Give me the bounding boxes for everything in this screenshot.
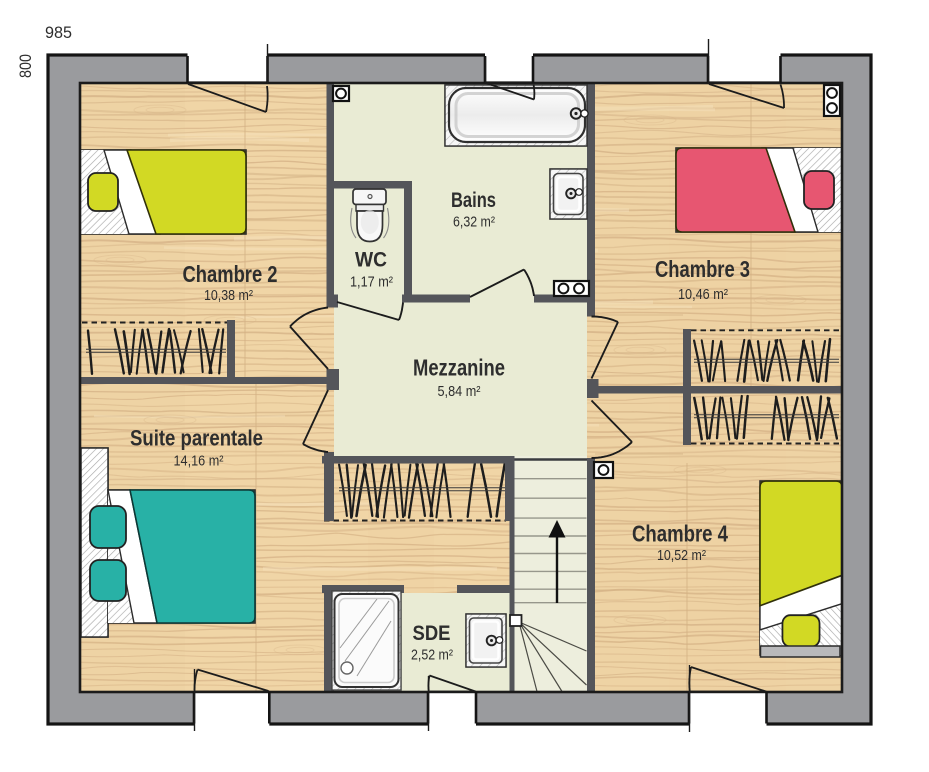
- svg-text:985: 985: [45, 24, 72, 42]
- svg-text:Suite parentale: Suite parentale: [130, 426, 263, 451]
- svg-text:14,16 m²: 14,16 m²: [174, 454, 224, 470]
- svg-text:5,84 m²: 5,84 m²: [438, 384, 481, 400]
- svg-text:2,52 m²: 2,52 m²: [411, 648, 453, 664]
- svg-text:10,52 m²: 10,52 m²: [657, 548, 706, 564]
- svg-text:6,32 m²: 6,32 m²: [453, 215, 495, 231]
- svg-text:Chambre 4: Chambre 4: [632, 521, 728, 547]
- svg-text:Mezzanine: Mezzanine: [413, 355, 505, 381]
- svg-text:Chambre 2: Chambre 2: [183, 261, 278, 287]
- svg-text:SDE: SDE: [413, 622, 451, 645]
- svg-text:WC: WC: [355, 249, 387, 272]
- svg-text:1,17 m²: 1,17 m²: [350, 275, 393, 291]
- svg-text:10,46 m²: 10,46 m²: [678, 287, 728, 303]
- svg-text:800: 800: [17, 54, 35, 78]
- svg-text:10,38 m²: 10,38 m²: [204, 288, 253, 304]
- svg-text:Bains: Bains: [451, 189, 496, 212]
- svg-text:Chambre 3: Chambre 3: [655, 256, 750, 282]
